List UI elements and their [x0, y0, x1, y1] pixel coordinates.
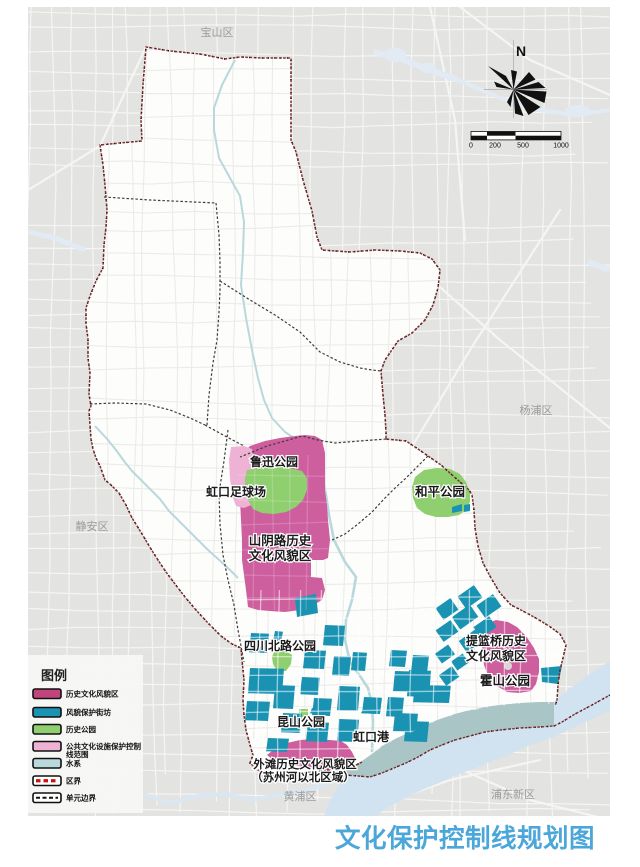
svg-text:N: N	[516, 43, 526, 59]
svg-text:浦东新区: 浦东新区	[491, 787, 535, 801]
svg-text:霍山公园: 霍山公园	[480, 673, 530, 688]
svg-text:提篮桥历史: 提篮桥历史	[466, 633, 527, 648]
svg-text:静安区: 静安区	[76, 519, 109, 533]
svg-text:风貌保护街坊: 风貌保护街坊	[66, 707, 111, 717]
svg-text:外滩历史文化风貌区: 外滩历史文化风貌区	[252, 757, 357, 771]
svg-text:图例: 图例	[41, 668, 67, 683]
svg-text:1000: 1000	[553, 143, 569, 150]
svg-text:（苏州河以北区域）: （苏州河以北区域）	[251, 770, 355, 784]
svg-text:水系: 水系	[66, 758, 81, 768]
svg-text:区界: 区界	[66, 776, 81, 786]
svg-text:单元边界: 单元边界	[66, 793, 96, 803]
svg-text:和平公园: 和平公园	[414, 484, 465, 499]
svg-text:山阴路历史: 山阴路历史	[249, 533, 312, 548]
svg-text:虹口港: 虹口港	[353, 729, 390, 744]
svg-text:文化风貌区: 文化风貌区	[466, 648, 526, 663]
svg-text:历史文化风貌区: 历史文化风貌区	[66, 689, 119, 699]
svg-text:四川北路公园: 四川北路公园	[244, 638, 316, 653]
svg-text:200: 200	[489, 143, 501, 150]
svg-text:黄浦区: 黄浦区	[284, 789, 317, 803]
svg-text:0: 0	[469, 143, 473, 150]
svg-text:昆山公园: 昆山公园	[277, 714, 325, 729]
svg-text:500: 500	[517, 143, 529, 150]
svg-text:线范围: 线范围	[66, 749, 89, 759]
svg-text:鲁迅公园: 鲁迅公园	[249, 454, 298, 469]
svg-text:历史公园: 历史公园	[66, 724, 96, 734]
svg-text:虹口足球场: 虹口足球场	[206, 484, 266, 499]
svg-text:文化风貌区: 文化风貌区	[249, 548, 312, 563]
svg-text:宝山区: 宝山区	[201, 25, 234, 39]
svg-text:文化保护控制线规划图: 文化保护控制线规划图	[335, 824, 595, 853]
svg-text:杨浦区: 杨浦区	[520, 403, 553, 417]
